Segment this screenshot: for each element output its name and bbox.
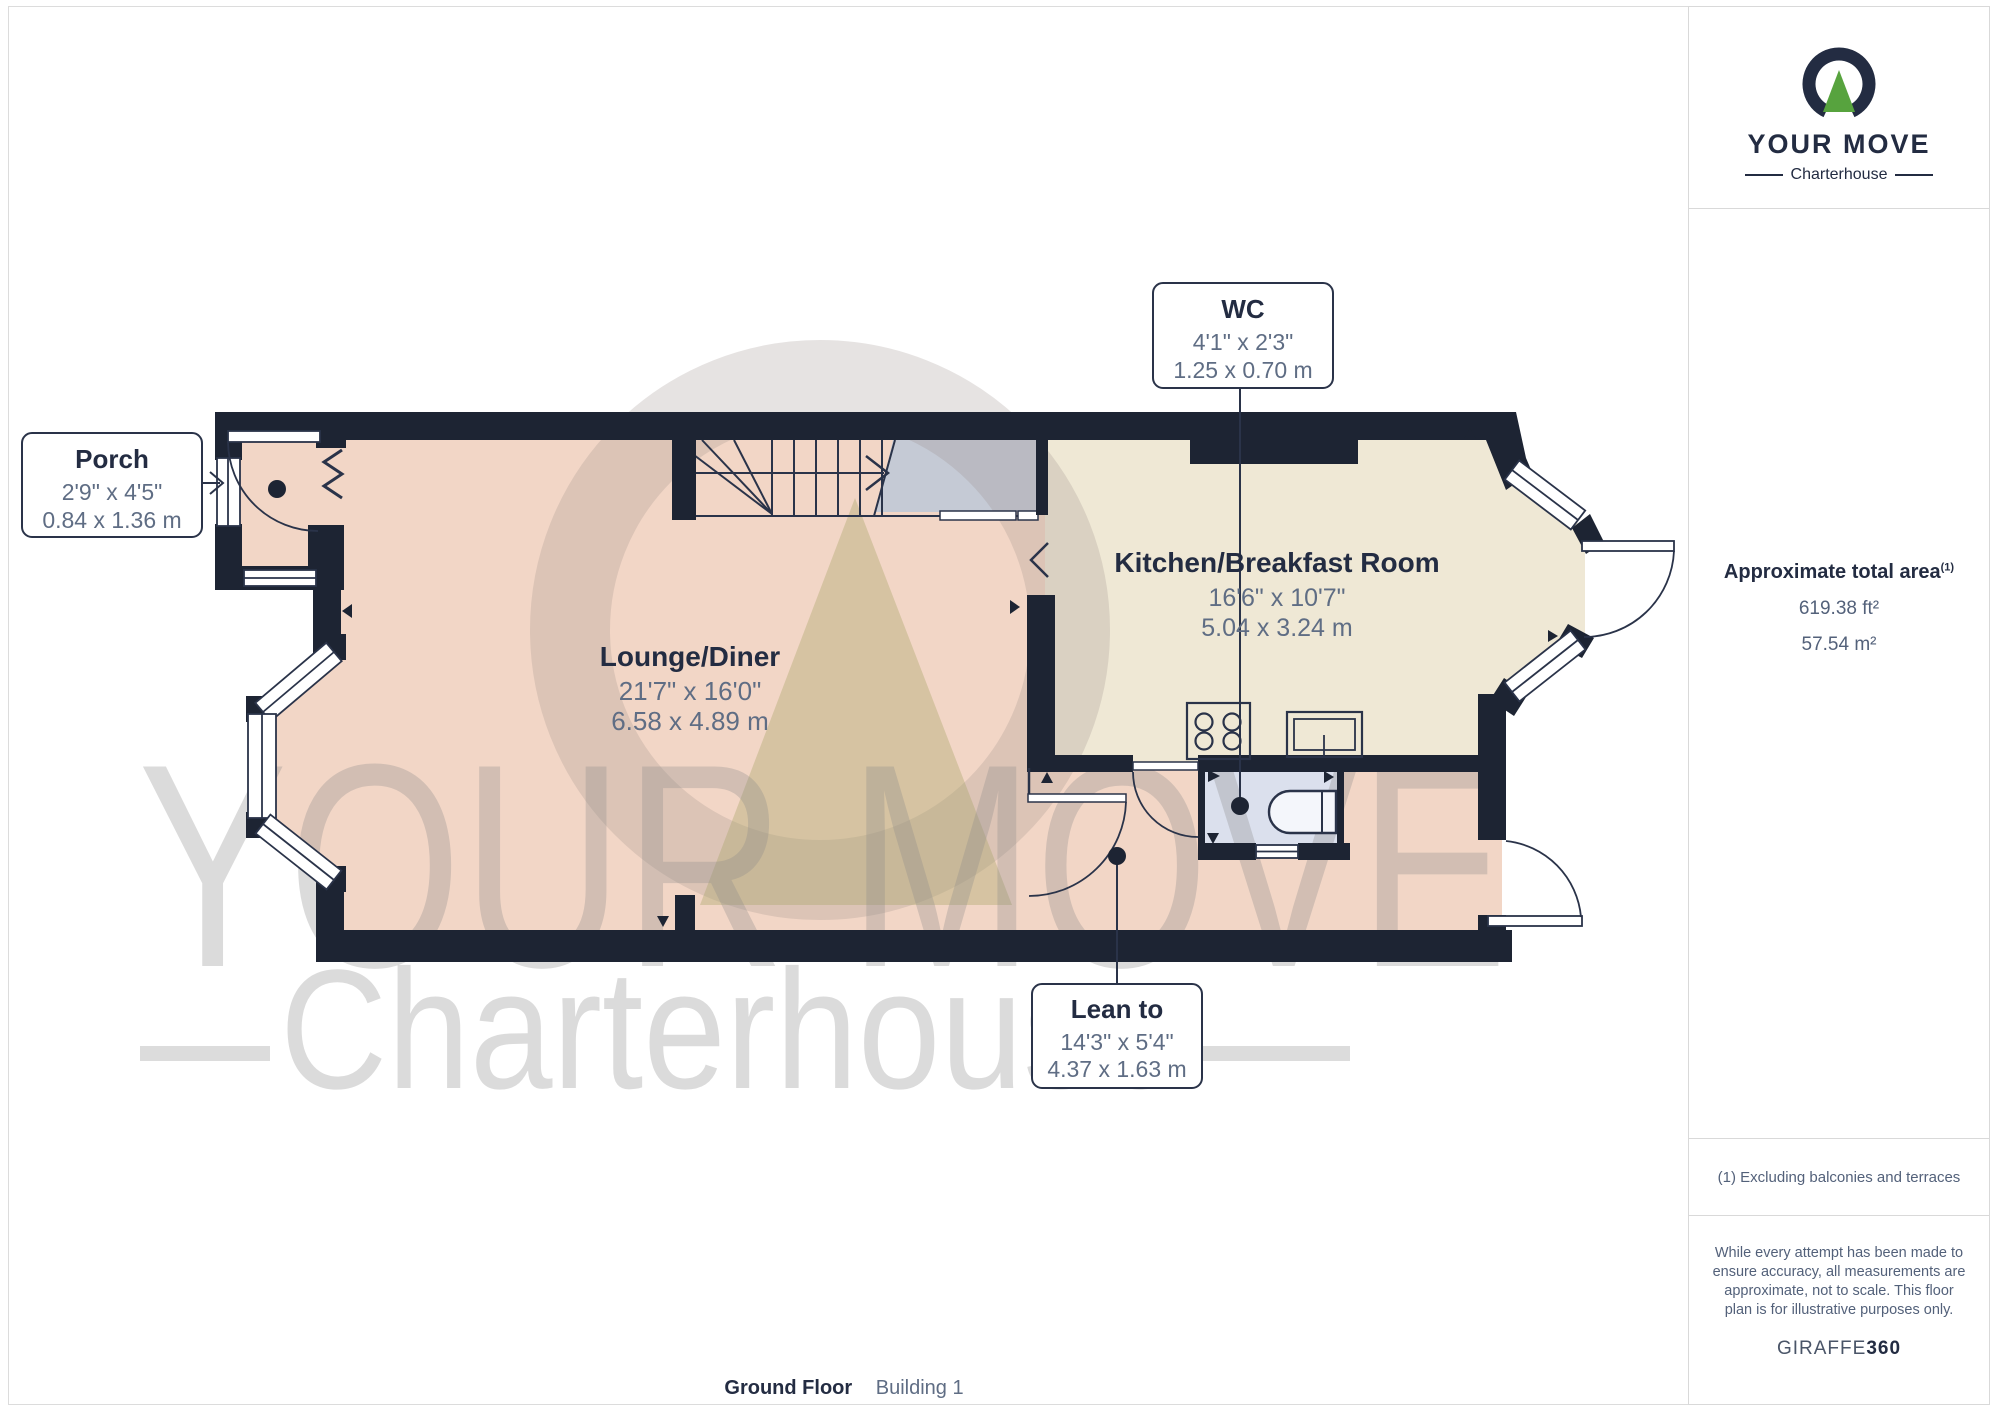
disclaimer-section: While every attempt has been made to ens…: [1689, 1216, 1989, 1404]
agency-subname-row: Charterhouse: [1745, 166, 1934, 184]
footnote-section: (1) Excluding balconies and terraces: [1689, 1139, 1989, 1216]
toilet: [1269, 791, 1336, 833]
lounge-bottom-stub: [675, 895, 695, 935]
watermark-dash-left: [140, 1046, 270, 1061]
svg-text:0.84 x 1.36 m: 0.84 x 1.36 m: [42, 507, 181, 533]
kitchen-bay-door-arc: [1584, 551, 1674, 637]
building-name: Building 1: [876, 1377, 964, 1399]
kitchen-lobby-door-leaf: [1133, 762, 1198, 770]
credit-giraffe: GIRAFFE: [1777, 1338, 1866, 1359]
credit-360: 360: [1866, 1338, 1901, 1359]
agency-logo: YOUR MOVE Charterhouse: [1689, 7, 1989, 209]
svg-text:4'1" x 2'3": 4'1" x 2'3": [1193, 329, 1294, 355]
plan-caption: Ground Floor Building 1: [0, 1377, 1688, 1400]
logo-triangle-icon: [1823, 70, 1855, 112]
leanto-door-leaf: [1488, 916, 1582, 926]
disclaimer-text: While every attempt has been made to ens…: [1710, 1244, 1968, 1320]
porch-leader-dot: [268, 480, 286, 498]
area-footnote-ref: (1): [1941, 561, 1954, 573]
kitchen-imperial: 16'6" x 10'7": [1208, 584, 1345, 612]
svg-text:WC: WC: [1221, 294, 1265, 324]
info-sidebar: YOUR MOVE Charterhouse Approximate total…: [1688, 6, 1990, 1405]
area-sqft: 619.38 ft²: [1689, 598, 1989, 620]
kitchen-divider-wall: [1027, 595, 1055, 772]
lounge-imperial: 21'7" x 16'0": [619, 676, 762, 706]
kitchen-bay-door-leaf: [1582, 541, 1674, 551]
area-title: Approximate total area(1): [1689, 561, 1989, 584]
floor-name: Ground Floor: [724, 1377, 852, 1399]
agency-logo-mark: [1759, 41, 1919, 123]
agency-subname: Charterhouse: [1791, 166, 1888, 184]
giraffe360-credit: GIRAFFE360: [1709, 1338, 1969, 1360]
porch-door-leaf: [228, 431, 320, 442]
floorplan: YOUR MOVE Charterhouse: [0, 0, 1688, 1414]
chimney-breast: [1190, 440, 1358, 464]
stair-left-stub: [672, 424, 696, 520]
wc-leader-dot: [1231, 797, 1249, 815]
svg-text:2'9" x 4'5": 2'9" x 4'5": [62, 479, 163, 505]
svg-text:Porch: Porch: [75, 444, 149, 474]
watermark-dash-right: [1200, 1046, 1350, 1061]
lounge-name: Lounge/Diner: [600, 641, 781, 672]
area-section: Approximate total area(1) 619.38 ft² 57.…: [1689, 209, 1989, 1139]
floorplan-svg: YOUR MOVE Charterhouse: [0, 0, 1688, 1414]
kitchen-name: Kitchen/Breakfast Room: [1114, 547, 1439, 578]
footnote-text: (1) Excluding balconies and terraces: [1718, 1169, 1961, 1186]
svg-text:1.25 x 0.70 m: 1.25 x 0.70 m: [1173, 357, 1312, 383]
svg-text:Lean to: Lean to: [1071, 994, 1163, 1024]
svg-text:4.37 x 1.63 m: 4.37 x 1.63 m: [1047, 1056, 1186, 1082]
leanto-door-arc: [1506, 841, 1581, 917]
kitchen-metric: 5.04 x 3.24 m: [1201, 614, 1352, 642]
dash-right: [1895, 174, 1933, 176]
area-sqm: 57.54 m²: [1689, 634, 1989, 656]
leanto-leader-dot: [1108, 847, 1126, 865]
svg-text:14'3" x 5'4": 14'3" x 5'4": [1060, 1029, 1173, 1055]
agency-name: YOUR MOVE: [1747, 129, 1930, 160]
lounge-lobby-door-leaf: [1028, 794, 1126, 802]
lounge-metric: 6.58 x 4.89 m: [611, 706, 769, 736]
dash-left: [1745, 174, 1783, 176]
